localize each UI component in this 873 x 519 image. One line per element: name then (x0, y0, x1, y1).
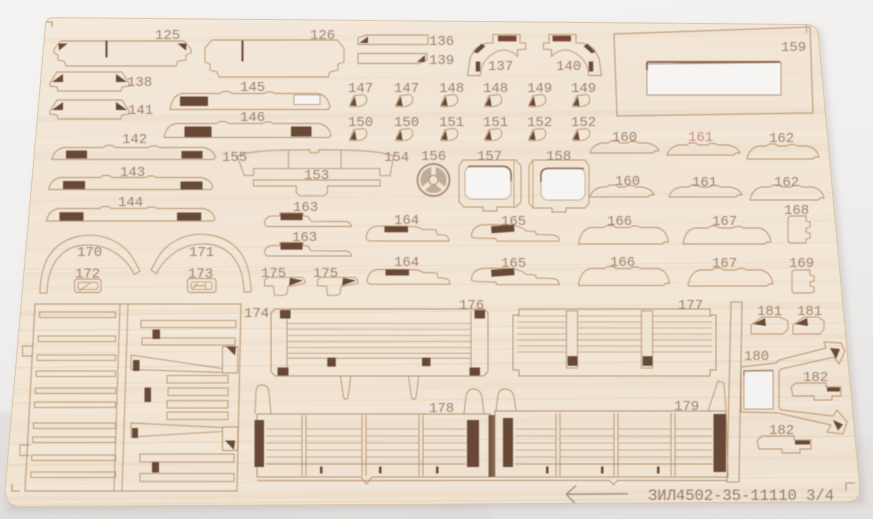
svg-text:160: 160 (615, 174, 640, 190)
svg-text:138: 138 (127, 75, 152, 91)
svg-text:169: 169 (789, 256, 814, 272)
svg-text:163: 163 (292, 230, 317, 246)
svg-text:161: 161 (692, 175, 717, 191)
svg-text:126: 126 (310, 28, 335, 44)
svg-text:162: 162 (774, 175, 799, 191)
svg-text:146: 146 (240, 110, 265, 126)
svg-text:137: 137 (488, 59, 513, 75)
svg-text:158: 158 (546, 149, 571, 165)
svg-text:165: 165 (501, 214, 526, 230)
svg-text:143: 143 (120, 165, 145, 181)
svg-text:155: 155 (222, 150, 247, 166)
svg-text:172: 172 (75, 267, 100, 283)
svg-text:176: 176 (459, 298, 484, 314)
svg-text:140: 140 (556, 59, 581, 75)
svg-text:125: 125 (155, 28, 180, 44)
svg-text:178: 178 (429, 401, 454, 417)
svg-text:154: 154 (384, 150, 409, 166)
svg-text:164: 164 (394, 213, 419, 229)
svg-text:153: 153 (304, 168, 329, 184)
svg-text:160: 160 (612, 130, 637, 146)
svg-text:156: 156 (421, 149, 446, 165)
svg-text:163: 163 (293, 200, 318, 216)
svg-text:166: 166 (610, 255, 635, 271)
svg-text:175: 175 (313, 266, 338, 282)
svg-text:145: 145 (240, 80, 265, 96)
svg-text:168: 168 (784, 203, 809, 219)
svg-text:167: 167 (712, 256, 737, 272)
svg-text:182: 182 (803, 370, 828, 386)
svg-text:161: 161 (688, 130, 713, 146)
svg-text:174: 174 (244, 306, 269, 322)
svg-text:144: 144 (118, 195, 143, 211)
svg-text:177: 177 (678, 298, 703, 314)
svg-text:181: 181 (757, 304, 782, 320)
svg-text:162: 162 (769, 131, 794, 147)
svg-text:182: 182 (769, 423, 794, 439)
svg-text:167: 167 (712, 214, 737, 230)
svg-text:173: 173 (188, 267, 213, 283)
svg-text:164: 164 (394, 255, 419, 271)
svg-text:170: 170 (77, 245, 102, 261)
svg-text:180: 180 (744, 349, 769, 365)
svg-text:141: 141 (128, 103, 153, 119)
svg-text:159: 159 (781, 40, 806, 56)
svg-text:166: 166 (607, 214, 632, 230)
svg-text:142: 142 (122, 132, 147, 148)
svg-text:136: 136 (429, 34, 454, 50)
svg-text:139: 139 (429, 53, 454, 69)
svg-text:179: 179 (674, 399, 699, 415)
svg-text:157: 157 (477, 149, 502, 165)
svg-text:171: 171 (189, 245, 214, 261)
svg-text:165: 165 (501, 256, 526, 272)
svg-text:175: 175 (261, 266, 286, 282)
svg-text:181: 181 (797, 304, 822, 320)
